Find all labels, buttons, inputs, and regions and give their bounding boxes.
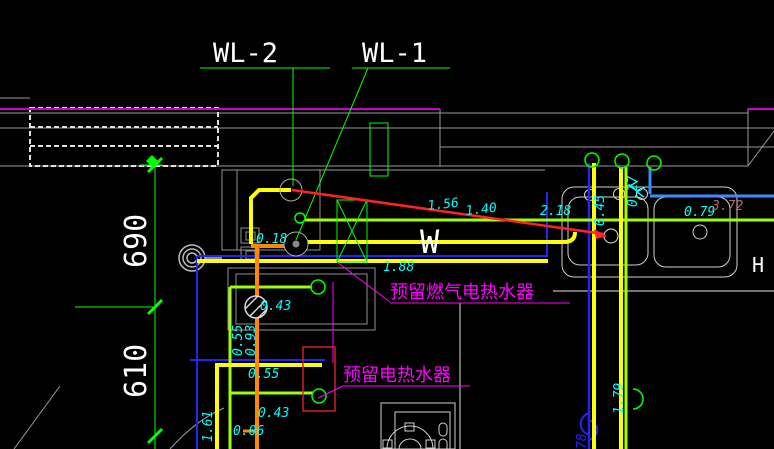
elevation-372: 3.72	[711, 199, 743, 214]
note-electric-heater: 预留电热水器	[343, 365, 451, 386]
elevation-156: 1.56	[427, 196, 460, 214]
dimension-lines	[75, 155, 163, 449]
elevation-278: 78	[575, 433, 590, 449]
elevation-079: 0.79	[684, 205, 715, 220]
elevation-218: 2.18	[540, 204, 571, 219]
elevation-018: 0.18	[256, 232, 287, 247]
dashed-block	[30, 108, 218, 166]
elevation-043a: 0.43	[260, 299, 291, 314]
partial-text-right: H	[752, 253, 764, 277]
elevation-043b: 0.43	[258, 406, 289, 421]
elevation-140: 1.40	[465, 201, 498, 219]
cad-drawing-canvas[interactable]: 预留燃气电热水器 预留电热水器 WL-2 WL-1 W 690 610 H 0.…	[0, 0, 774, 449]
cad-plan-svg: 预留燃气电热水器 预留电热水器 WL-2 WL-1 W 690 610 H 0.…	[0, 0, 774, 449]
elevation-006: 0.06	[233, 424, 264, 439]
elevation-179: 1.79	[612, 383, 627, 414]
reserved-heater-box	[303, 347, 335, 411]
riser-label-wl2: WL-2	[213, 38, 278, 69]
elevation-045: 0.45	[593, 195, 608, 226]
elevation-161: 1.61	[201, 411, 216, 442]
dimension-610: 610	[119, 344, 154, 398]
bright-blue-pipe-run	[650, 167, 774, 196]
gas-meter-icon	[179, 245, 222, 271]
elevation-093: 0.93	[244, 325, 259, 356]
capped-junction-circle	[284, 232, 308, 256]
note-gas-heater: 预留燃气电热水器	[390, 282, 534, 303]
elevation-055h: 0.55	[248, 367, 279, 382]
system-letter-w: W	[420, 223, 440, 261]
dimension-690: 690	[119, 214, 154, 268]
stove-symbol	[381, 403, 455, 449]
riser-label-wl1: WL-1	[362, 38, 427, 69]
elevation-188: 1.88	[383, 260, 414, 275]
